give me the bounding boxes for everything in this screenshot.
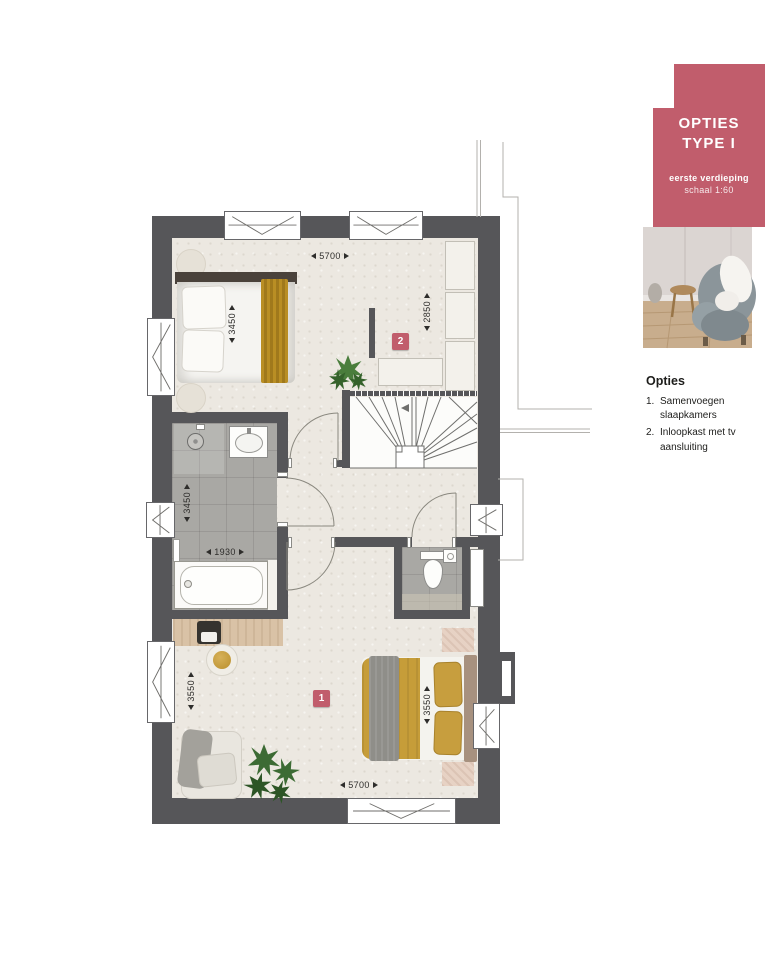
door-jamb — [452, 537, 456, 548]
option-label: Inloopkast met tv aansluiting — [660, 426, 754, 454]
gray-throw — [369, 656, 399, 761]
dim-arrow — [184, 517, 190, 522]
round-rug — [176, 383, 206, 413]
dim-arrow — [188, 705, 194, 710]
option-marker-2: 2 — [392, 333, 409, 350]
pillow — [181, 329, 224, 372]
card-scale: schaal 1:60 — [653, 185, 765, 195]
tub-basin — [180, 566, 263, 605]
dim-label-bathroom-length: 3450 — [179, 476, 195, 530]
dim-arrow — [229, 338, 235, 343]
dim-label-top-width: 5700 — [303, 249, 357, 263]
armchair — [181, 731, 242, 799]
options-legend: Opties 1. Samenvoegen slaapkamers 2. Inl… — [646, 374, 754, 458]
door-jamb — [288, 458, 292, 468]
dim-arrow — [229, 305, 235, 310]
option-marker-1: 1 — [313, 690, 330, 707]
dim-arrow — [184, 484, 190, 489]
dim-arrow — [373, 782, 378, 788]
pouf — [206, 644, 238, 676]
door-jamb — [331, 537, 335, 548]
desk-chair — [197, 621, 221, 644]
pouf-cushion — [213, 651, 231, 669]
window — [473, 703, 500, 749]
option-number: 2. — [646, 426, 660, 454]
dim-arrow — [188, 672, 194, 677]
window — [146, 502, 175, 538]
card-notch — [653, 64, 674, 108]
chimney-flue — [502, 661, 511, 696]
toilet-bowl — [423, 559, 443, 589]
closet-cabinet — [378, 358, 443, 386]
dim-label-room1-depth: 3550 — [183, 664, 199, 718]
neighbor-outline — [470, 135, 600, 575]
bathroom-top-wall — [172, 412, 288, 423]
bathtub — [174, 561, 268, 609]
towel-radiator — [173, 539, 180, 562]
wc-bottom-wall — [394, 610, 470, 619]
dim-label-bathroom-width: 1930 — [200, 545, 250, 559]
shower-valve — [196, 424, 205, 430]
dim-arrow — [344, 253, 349, 259]
nightstand — [442, 628, 474, 652]
washbasin — [229, 426, 268, 458]
pillow — [433, 662, 463, 708]
window — [347, 798, 456, 824]
window — [147, 641, 175, 723]
door-jamb — [407, 537, 411, 548]
basin-tap — [247, 428, 251, 434]
dim-label-bed1: 3550 — [419, 678, 435, 732]
interior-photo — [643, 227, 752, 348]
option-number: 1. — [646, 395, 660, 423]
dim-arrow — [424, 686, 430, 691]
dim-arrow — [239, 549, 244, 555]
shower-screen — [267, 560, 277, 610]
window — [147, 318, 175, 396]
door-jamb — [277, 522, 288, 527]
door-jamb — [333, 458, 337, 468]
tub-faucet — [184, 580, 192, 588]
dim-arrow — [340, 782, 345, 788]
dim-label-bed2: 3450 — [224, 297, 240, 351]
pillow — [433, 711, 463, 756]
bathroom-bottom-wall — [172, 610, 288, 619]
dim-arrow — [424, 293, 430, 298]
basin-bowl — [235, 433, 263, 453]
option-item: 2. Inloopkast met tv aansluiting — [646, 426, 754, 454]
card-subtitle: eerste verdieping — [653, 173, 765, 183]
option-item: 1. Samenvoegen slaapkamers — [646, 395, 754, 423]
dim-arrow — [424, 326, 430, 331]
dim-label-closet-depth: 2850 — [419, 286, 435, 338]
pillow — [181, 285, 226, 330]
options-heading: Opties — [646, 374, 754, 388]
dim-arrow — [311, 253, 316, 259]
dim-arrow — [424, 719, 430, 724]
nightstand — [442, 762, 474, 786]
dim-label-bottom-width: 5700 — [332, 778, 386, 792]
chair-seat — [201, 632, 217, 642]
desk — [173, 619, 283, 646]
window — [349, 211, 423, 240]
door-jamb — [277, 472, 288, 477]
wc-sink — [443, 549, 457, 563]
option-label: Samenvoegen slaapkamers — [660, 395, 754, 423]
mustard-throw — [261, 279, 288, 383]
brochure-page: 5700 2850 3450 3450 1930 3550 3550 — [0, 0, 765, 955]
window — [224, 211, 301, 240]
shower-head — [187, 433, 204, 450]
armchair-cushion — [196, 752, 237, 788]
door-jamb — [288, 537, 292, 548]
dim-arrow — [206, 549, 211, 555]
wc-sink-bowl — [447, 553, 454, 560]
plant-icon — [242, 738, 302, 804]
